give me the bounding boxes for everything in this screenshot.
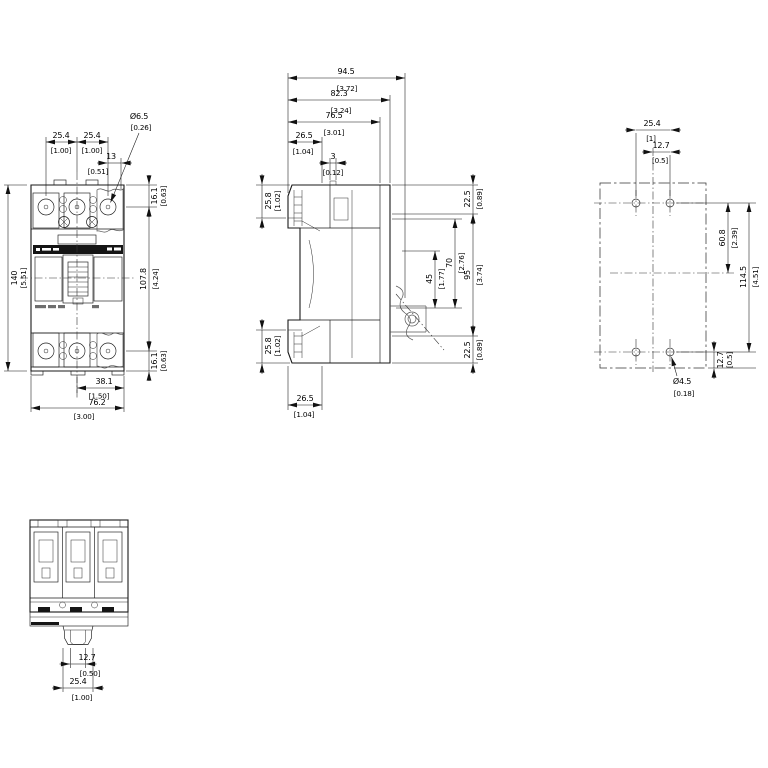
dim-plan-upperspan-in: [2.39] — [730, 227, 739, 248]
side-view — [288, 181, 444, 363]
front-view-dimensions: 25.4 [1.00] 25.4 [1.00] 13 [0.51] Ø6.5 [… — [4, 111, 168, 421]
dim-side-termbottom-mm: 25.8 — [264, 337, 273, 354]
dim-front-topedge-mm: 16.1 — [150, 187, 159, 204]
dim-front-pitch2-in: [1.00] — [82, 146, 103, 155]
dim-bottom-slot-mm: 12.7 — [78, 653, 95, 662]
dim-front-offset-in: [0.51] — [88, 167, 109, 176]
dim-plan-holespan-in: [4.51] — [751, 266, 760, 287]
dim-plan-bottomedge-mm: 12.7 — [716, 351, 725, 368]
drawing-canvas: 25.4 [1.00] 25.4 [1.00] 13 [0.51] Ø6.5 [… — [0, 0, 768, 768]
dim-side-rearbottom-in: [0.89] — [475, 339, 484, 360]
drilling-plan-view — [594, 148, 735, 372]
dim-front-width-mm: 76.2 — [88, 398, 105, 407]
dim-side-slot70-mm: 70 — [445, 258, 454, 268]
dim-side-depthbody-in: [3.01] — [324, 128, 345, 137]
dim-front-topedge-in: [0.63] — [159, 185, 168, 206]
dim-side-termtop-mm: 25.8 — [264, 192, 273, 209]
dim-bottom-tab-in: [1.00] — [72, 693, 93, 702]
dim-front-height-in: [5.51] — [19, 267, 28, 288]
dim-side-slot70-in: [2.76] — [457, 252, 466, 273]
dim-side-rearspan-in: [3.74] — [475, 264, 484, 285]
dim-front-centerheight-in: [4.24] — [151, 268, 160, 289]
dim-side-depthmount-mm: 82.3 — [330, 89, 347, 98]
dim-bottom-tab-mm: 25.4 — [69, 677, 86, 686]
dim-front-hole-in: [0.26] — [131, 123, 152, 132]
dim-side-rib-in: [0.12] — [323, 168, 344, 177]
bottom-view-dimensions: 12.7 [0.50] 25.4 [1.00] — [52, 648, 104, 702]
dim-side-rib-mm: 3 — [331, 152, 336, 161]
dim-plan-holehalf-in: [0.5] — [652, 156, 668, 165]
dim-front-botedge-mm: 16.1 — [150, 352, 159, 369]
dim-side-reartop-in: [0.89] — [475, 188, 484, 209]
dim-side-slot45-in: [1.77] — [437, 268, 446, 289]
dim-front-botedge-in: [0.63] — [159, 350, 168, 371]
side-view-dimensions: 94.5 [3.72] 82.3 [3.24] 76.5 [3.01] 26.5… — [256, 67, 484, 419]
dim-front-offset-mm: 13 — [106, 152, 116, 161]
dim-side-depthbody-mm: 76.5 — [325, 111, 342, 120]
dim-front-pitch2-mm: 25.4 — [83, 131, 100, 140]
dim-side-rearbottom-mm: 22.5 — [463, 341, 472, 358]
drilling-plan-dimensions: 25.4 [1] 12.7 [0.5] 60.8 [2.39] 114.5 [4… — [625, 119, 760, 398]
dim-side-fronttop-in: [1.04] — [293, 147, 314, 156]
dim-side-reartop-mm: 22.5 — [463, 190, 472, 207]
dim-front-width-in: [3.00] — [74, 412, 95, 421]
dim-front-pitch1-mm: 25.4 — [52, 131, 69, 140]
dim-plan-holepitch-mm: 25.4 — [643, 119, 660, 128]
dim-plan-upperspan-mm: 60.8 — [718, 229, 727, 246]
dim-front-pitch1-in: [1.00] — [51, 146, 72, 155]
dim-side-depthoverall-mm: 94.5 — [337, 67, 354, 76]
dim-side-termbottom-in: [1.02] — [273, 335, 282, 356]
dim-side-termtop-in: [1.02] — [273, 190, 282, 211]
dim-side-slot45-mm: 45 — [425, 274, 434, 284]
dimension-drawing-sheet: 25.4 [1.00] 25.4 [1.00] 13 [0.51] Ø6.5 [… — [0, 0, 768, 768]
dim-plan-holedia-mm: Ø4.5 — [673, 376, 691, 386]
dim-front-centerheight-mm: 107.8 — [139, 268, 148, 290]
dim-side-frontbottom-in: [1.04] — [294, 410, 315, 419]
dim-side-frontbottom-mm: 26.5 — [296, 394, 313, 403]
bottom-view — [30, 520, 128, 645]
front-view — [20, 172, 135, 398]
dim-front-height-mm: 140 — [10, 271, 19, 286]
dim-plan-holehalf-mm: 12.7 — [652, 141, 669, 150]
dim-front-hole-mm: Ø6.5 — [130, 111, 148, 121]
dim-side-fronttop-mm: 26.5 — [295, 131, 312, 140]
dim-plan-bottomedge-in: [0.5] — [725, 352, 734, 368]
dim-plan-holespan-mm: 114.5 — [739, 266, 748, 288]
dim-front-halfwidth-mm: 38.1 — [95, 377, 112, 386]
dim-plan-holedia-in: [0.18] — [674, 389, 695, 398]
